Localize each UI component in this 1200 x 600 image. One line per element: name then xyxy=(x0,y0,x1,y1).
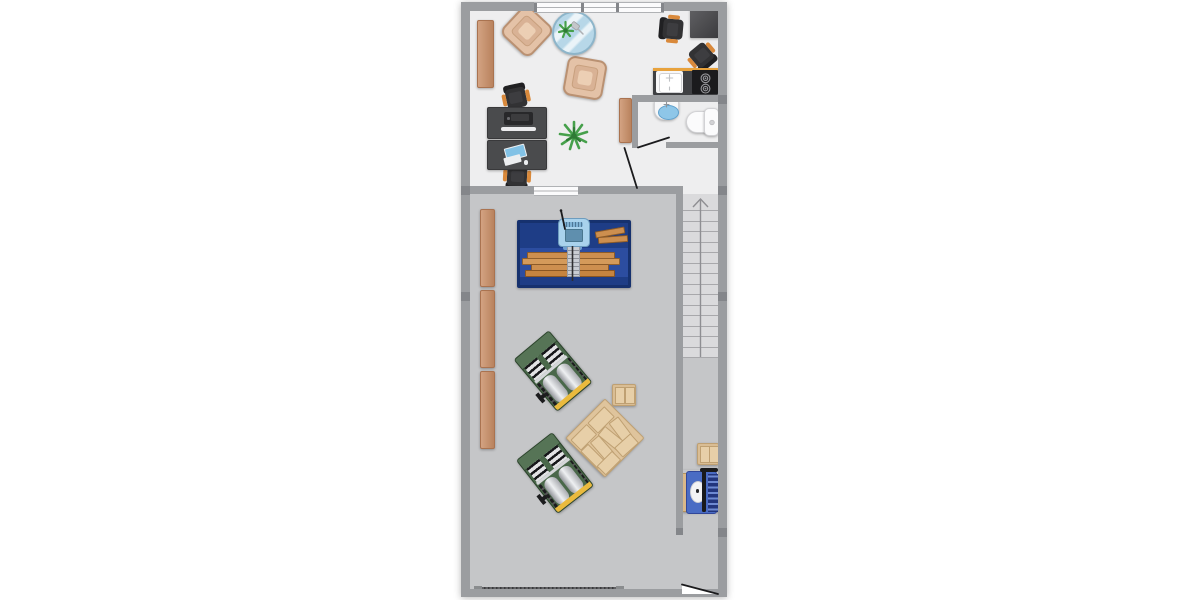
wall-stairwell xyxy=(676,186,683,535)
dust-collector-handle xyxy=(700,468,718,472)
desk-with-printer[interactable] xyxy=(487,107,547,139)
printer-paper-tray xyxy=(501,127,536,131)
wall-joint xyxy=(718,528,727,537)
sideboard-office[interactable] xyxy=(477,20,494,88)
window-top[interactable] xyxy=(534,2,664,13)
wall-joint xyxy=(718,292,727,301)
saw-head xyxy=(558,218,590,247)
wall-joint xyxy=(718,186,727,195)
wall-joint xyxy=(461,186,470,195)
toilet-tank xyxy=(704,108,719,136)
floorplan-canvas xyxy=(0,0,1200,600)
crate-plank xyxy=(625,387,635,404)
stair-tread xyxy=(683,273,718,284)
office-chair-3[interactable] xyxy=(658,15,686,43)
kitchen-sink-panel xyxy=(656,71,683,93)
armchair-2[interactable] xyxy=(562,55,608,101)
motor-hub xyxy=(696,489,700,493)
wall-joint xyxy=(676,528,683,535)
chair-armrest xyxy=(527,171,532,183)
wall-bottom xyxy=(461,589,727,597)
window-divider[interactable] xyxy=(534,186,578,196)
stair-tread xyxy=(683,305,718,316)
armchair-cushion xyxy=(510,14,544,48)
window-mullion xyxy=(616,3,619,12)
dust-collector[interactable] xyxy=(682,470,720,512)
wall-bathroom-bottom xyxy=(666,142,718,148)
wall-bathroom-left xyxy=(632,95,638,148)
saw-screen xyxy=(565,229,583,242)
stair-tread xyxy=(683,221,718,232)
printer-button xyxy=(507,117,510,120)
stair-tread xyxy=(683,242,718,253)
saw-column xyxy=(567,246,580,277)
stair-tread xyxy=(683,252,718,263)
wall-shelf-1[interactable] xyxy=(480,209,495,287)
stair-tread xyxy=(683,263,718,274)
stair-tread xyxy=(683,294,718,305)
stair-tread xyxy=(683,210,718,221)
basin-bowl xyxy=(658,105,679,120)
kitchen-sink xyxy=(659,73,682,93)
desk-with-computer[interactable] xyxy=(487,140,547,170)
stair-tread xyxy=(683,326,718,337)
wall-joint xyxy=(718,95,727,104)
cooktop xyxy=(692,70,718,94)
stair-tread xyxy=(683,336,718,347)
chair-armrest xyxy=(503,169,508,181)
wall-shelf-2[interactable] xyxy=(480,290,495,368)
staircase-treads xyxy=(683,210,718,358)
wall-joint xyxy=(461,292,470,301)
chair-seat xyxy=(662,18,684,40)
sideboard-hall[interactable] xyxy=(619,98,632,143)
stair-tread xyxy=(683,315,718,326)
window-mullion xyxy=(534,3,537,12)
saw-vent xyxy=(563,222,583,227)
crate-plank xyxy=(615,387,625,404)
mouse xyxy=(524,160,528,165)
staircase[interactable] xyxy=(683,194,718,358)
stair-tread xyxy=(683,284,718,295)
round-glass-table[interactable] xyxy=(552,11,596,55)
stair-tread xyxy=(683,231,718,242)
wood-crate-2[interactable] xyxy=(697,443,719,465)
printer-lid xyxy=(511,114,529,121)
stair-tread xyxy=(683,347,718,358)
wash-basin[interactable] xyxy=(654,101,679,120)
kitchen-counter[interactable] xyxy=(653,68,718,95)
wood-crate-1[interactable] xyxy=(612,384,636,406)
wall-bathroom-top xyxy=(632,95,718,102)
window-mullion xyxy=(661,3,664,12)
window-mullion xyxy=(581,3,584,12)
armchair-cushion xyxy=(571,64,599,92)
wall-shelf-3[interactable] xyxy=(480,371,495,449)
